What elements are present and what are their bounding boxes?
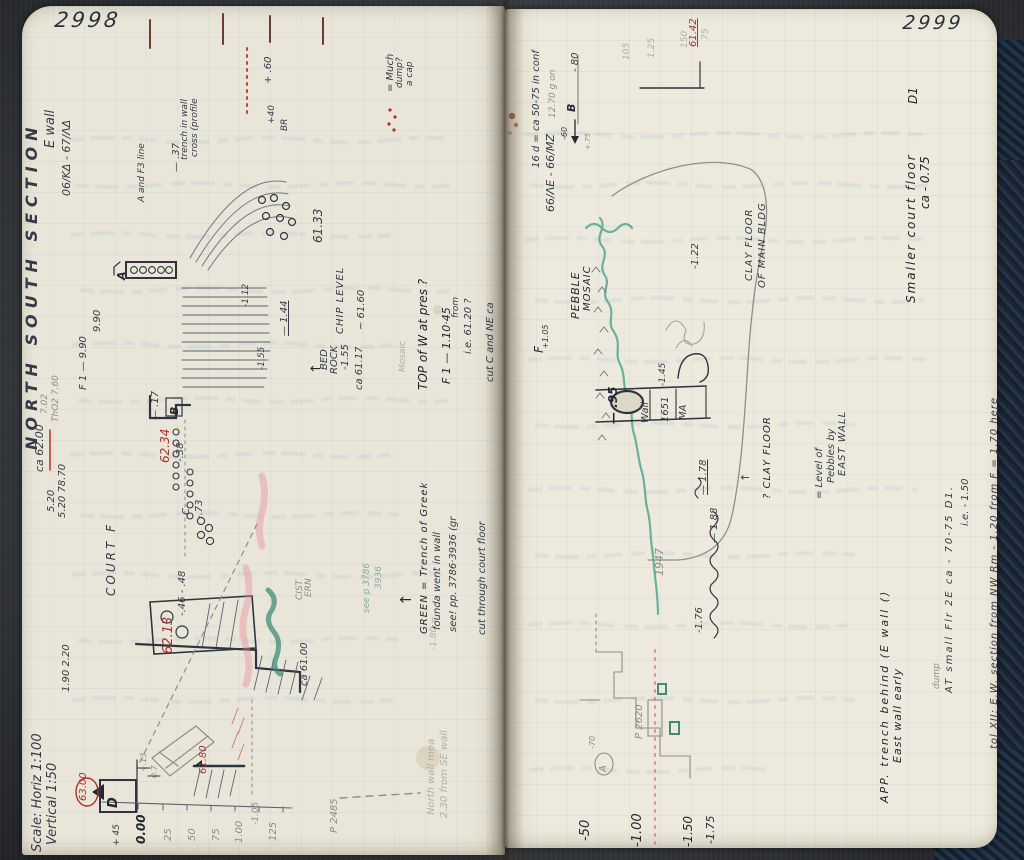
notebook-photo: NORTH SOUTH SECTIONE wall06/ΚΔ - 67/ΛΔca… (0, 0, 1024, 860)
page-number-left: 2998 (53, 8, 122, 32)
book-binding-cloth (994, 60, 1024, 860)
notebook-page-left (22, 6, 505, 855)
notebook-page-right (505, 9, 997, 848)
page-number-right: 2999 (901, 12, 964, 34)
